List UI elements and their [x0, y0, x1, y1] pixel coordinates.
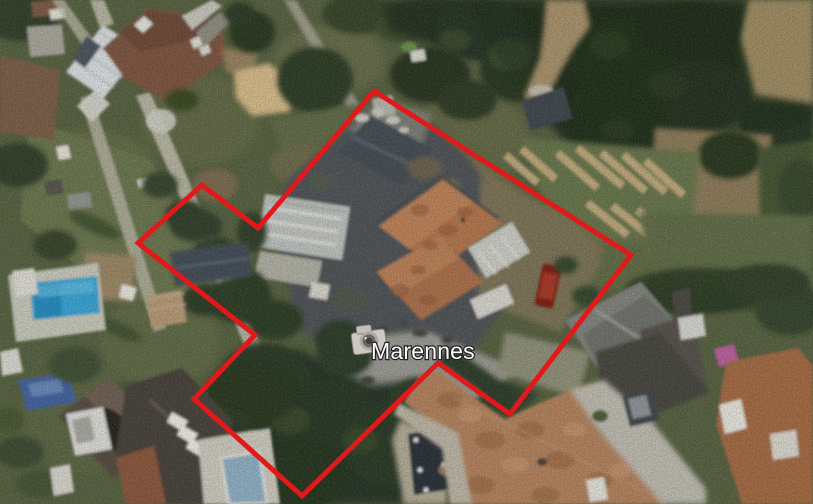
svg-text:Marennes: Marennes — [371, 338, 475, 364]
